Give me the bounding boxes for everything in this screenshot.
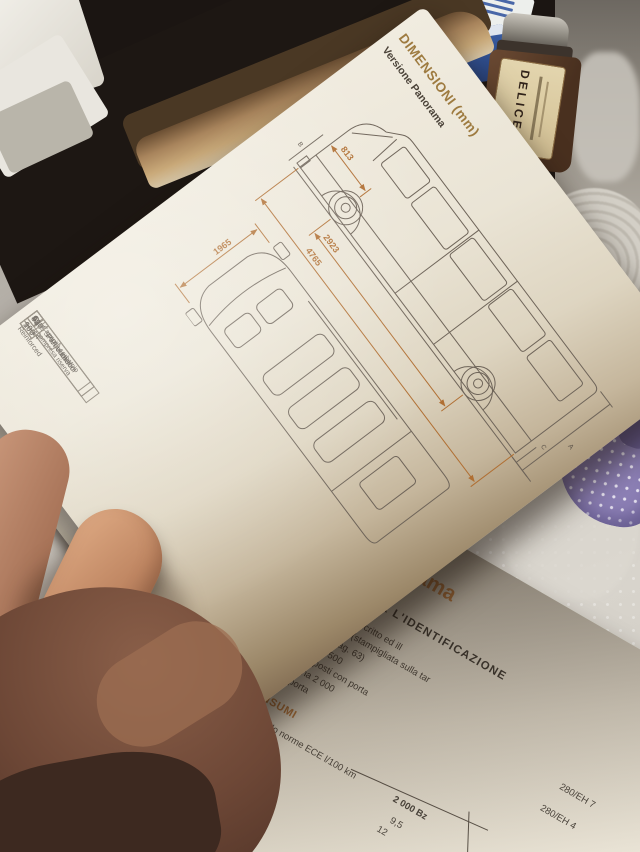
table-diagonal	[466, 812, 470, 852]
dim-width-label: 1965	[211, 237, 233, 257]
top-view-dimensions	[175, 224, 269, 303]
marker-c-label: C	[539, 444, 548, 452]
dim-length-label: 4765	[304, 246, 324, 268]
side-view-dimensions	[255, 141, 550, 487]
marker-b-label: B	[296, 141, 304, 149]
dim-overhang-label: 813	[339, 144, 356, 162]
consumi-value: 9,5	[387, 814, 405, 832]
marker-a-label: A	[566, 443, 575, 451]
model-code: 280/EH 4	[537, 802, 578, 834]
photo-scene: DELICE Panorama DATI PER L'IDENTIFICAZIO…	[0, 0, 640, 852]
model-code: 280/EH 7	[557, 781, 598, 813]
dim-wheelbase-label: 2923	[321, 233, 341, 255]
top-view-drawing	[180, 235, 460, 552]
